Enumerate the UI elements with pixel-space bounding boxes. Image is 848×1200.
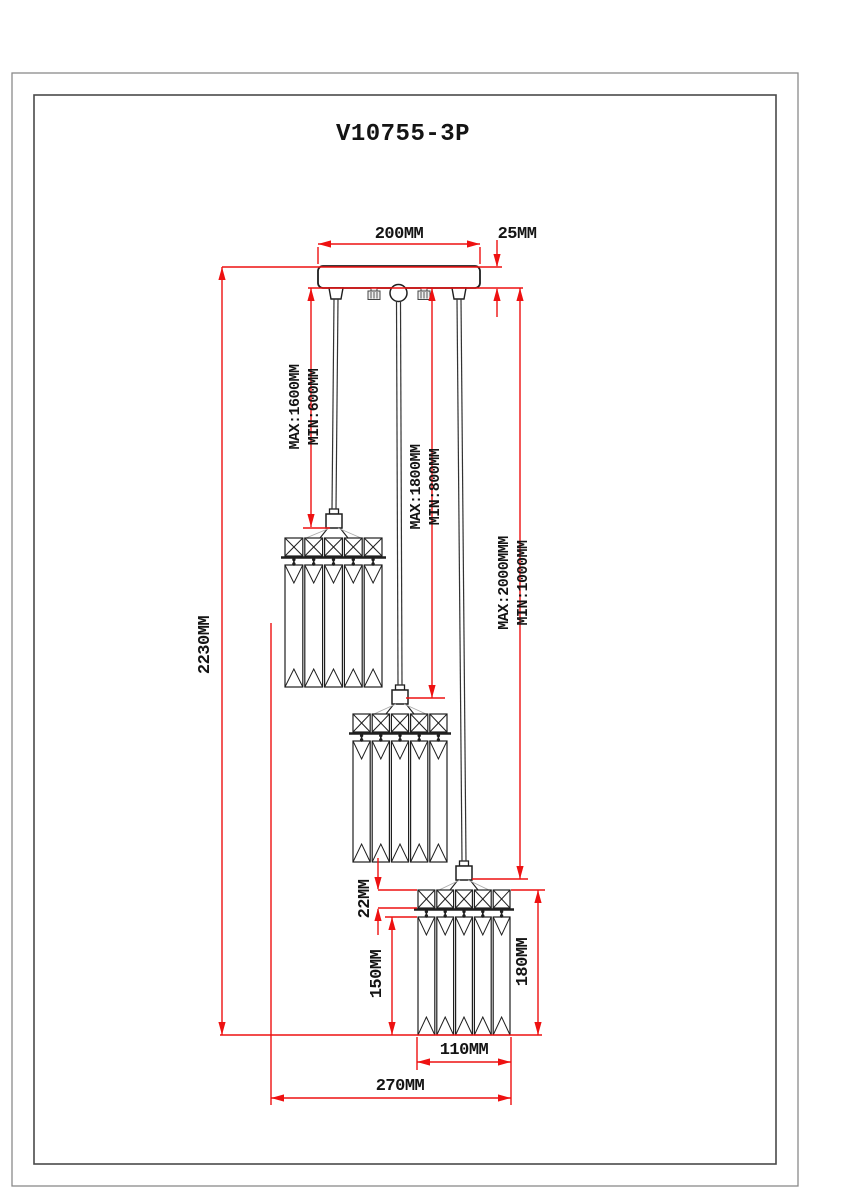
shade-1-prism-facet bbox=[285, 565, 303, 583]
label-pendant3-max: MAX:2000MMM bbox=[496, 536, 513, 630]
shade-2-prism-facet bbox=[430, 844, 447, 862]
shade-3-link-pin bbox=[425, 910, 428, 913]
shade-2-cord bbox=[401, 301, 403, 685]
dimension-arrowhead bbox=[428, 685, 435, 698]
label-band-height: 22MM bbox=[356, 879, 375, 918]
dimension-arrowhead bbox=[534, 890, 541, 903]
dimension-arrowhead bbox=[307, 288, 314, 301]
shade-1-prism-facet bbox=[325, 565, 343, 583]
shade-2-link-pin bbox=[379, 734, 382, 737]
drawing-title: V10755-3P bbox=[336, 121, 470, 148]
label-pendant2-max: MAX:1800MM bbox=[408, 444, 425, 530]
dimension-arrowhead bbox=[218, 267, 225, 280]
shade-3-cap bbox=[456, 866, 472, 880]
label-cluster-span: 270MM bbox=[376, 1077, 425, 1096]
shade-1-link-pin bbox=[292, 558, 295, 561]
shade-3-prism-facet bbox=[437, 917, 454, 935]
dimension-arrowhead bbox=[534, 1022, 541, 1035]
shade-1 bbox=[281, 509, 386, 687]
dimension-arrowhead bbox=[516, 288, 523, 301]
dimension-arrowhead bbox=[493, 254, 500, 267]
shade-1-link-pin bbox=[312, 558, 315, 561]
dimension-arrowhead bbox=[374, 908, 381, 921]
label-canopy-width: 200MM bbox=[375, 225, 424, 244]
label-shade-height: 180MM bbox=[514, 937, 533, 986]
shade-2-prism-facet bbox=[372, 844, 389, 862]
shade-2-link-pin bbox=[418, 734, 421, 737]
shade-2-prism-facet bbox=[391, 741, 408, 759]
shade-2-cord bbox=[397, 301, 399, 685]
dimension-arrowhead bbox=[498, 1094, 511, 1101]
technical-drawing-canvas: V10755-3P 200MM 25MM 2230MM MAX:1600MM M… bbox=[0, 0, 848, 1200]
shade-2-prism-facet bbox=[372, 741, 389, 759]
shade-2-link-pin bbox=[398, 734, 401, 737]
shade-2-prism-facet bbox=[430, 741, 447, 759]
shade-1-cord bbox=[332, 299, 334, 509]
cord-hook-left bbox=[329, 288, 343, 299]
shade-1-prism-facet bbox=[364, 565, 382, 583]
label-pendant1-min: MIN:600MM bbox=[306, 368, 323, 445]
shade-1-prism-facet bbox=[344, 565, 362, 583]
label-pendant2-min: MIN:800MM bbox=[427, 448, 444, 525]
shade-3-link-pin bbox=[500, 910, 503, 913]
dimension-arrowhead bbox=[271, 1094, 284, 1101]
shade-2-flare-inner bbox=[404, 704, 426, 714]
shade-1-prism-facet bbox=[285, 669, 303, 687]
shade-3-flare-inner bbox=[468, 880, 489, 890]
shade-3-link-pin bbox=[462, 910, 465, 913]
shade-2-prism-facet bbox=[353, 741, 370, 759]
shade-2-prism-facet bbox=[411, 741, 428, 759]
dimension-arrowhead bbox=[388, 917, 395, 930]
dimension-arrowhead bbox=[417, 1058, 430, 1065]
shade-3-prism-facet bbox=[474, 917, 491, 935]
label-canopy-height: 25MM bbox=[498, 225, 537, 244]
label-overall-drop: 2230MM bbox=[196, 616, 215, 675]
dimension-arrowhead bbox=[516, 866, 523, 879]
shade-3 bbox=[414, 861, 514, 1035]
label-prism-height: 150MM bbox=[368, 949, 387, 998]
shade-2-link-pin bbox=[437, 734, 440, 737]
shade-1-flare-inner bbox=[338, 528, 361, 538]
label-pendant1-max: MAX:1600MM bbox=[287, 364, 304, 450]
shade-1-prism-facet bbox=[305, 565, 323, 583]
shade-1-prism-facet bbox=[305, 669, 323, 687]
shade-3-prism-facet bbox=[493, 1017, 510, 1035]
shade-3-prism-facet bbox=[456, 917, 473, 935]
dimension-arrowhead bbox=[218, 1022, 225, 1035]
shade-1-link-pin bbox=[371, 558, 374, 561]
shade-1-prism-facet bbox=[344, 669, 362, 687]
shade-3-prism-facet bbox=[418, 1017, 435, 1035]
dimension-arrowhead bbox=[498, 1058, 511, 1065]
dimension-arrowhead bbox=[467, 240, 480, 247]
shade-1-flare-inner bbox=[306, 528, 330, 538]
shade-1-cord bbox=[336, 299, 338, 509]
shade-1-prism-facet bbox=[325, 669, 343, 687]
shade-3-prism-facet bbox=[418, 917, 435, 935]
cord-hook-right bbox=[452, 288, 466, 299]
shade-2-link-pin bbox=[360, 734, 363, 737]
shade-2-prism-facet bbox=[353, 844, 370, 862]
shade-3-link-pin bbox=[481, 910, 484, 913]
shade-3-flare-inner bbox=[439, 880, 460, 890]
shade-2-prism-facet bbox=[391, 844, 408, 862]
label-shade-width: 110MM bbox=[440, 1041, 489, 1060]
shade-3-prism-facet bbox=[437, 1017, 454, 1035]
shade-2-flare-inner bbox=[374, 704, 396, 714]
shade-2-cap bbox=[392, 690, 408, 704]
dimension-arrowhead bbox=[388, 1022, 395, 1035]
shade-3-link-pin bbox=[444, 910, 447, 913]
dimension-arrowhead bbox=[318, 240, 331, 247]
inner-border bbox=[34, 95, 776, 1164]
shade-1-link-pin bbox=[352, 558, 355, 561]
shade-2 bbox=[349, 685, 451, 862]
dimension-arrowhead bbox=[374, 877, 381, 890]
shade-3-prism-facet bbox=[456, 1017, 473, 1035]
shade-1-link-pin bbox=[332, 558, 335, 561]
dimension-arrowhead bbox=[307, 514, 314, 527]
shade-1-prism-facet bbox=[364, 669, 382, 687]
shade-2-prism-facet bbox=[411, 844, 428, 862]
dimension-arrowhead bbox=[493, 288, 500, 301]
dimension-labels: 200MM 25MM 2230MM MAX:1600MM MIN:600MM M… bbox=[196, 225, 537, 1096]
shade-3-prism-facet bbox=[493, 917, 510, 935]
canopy-ball bbox=[390, 285, 407, 302]
shade-3-prism-facet bbox=[474, 1017, 491, 1035]
shade-1-cap bbox=[326, 514, 342, 528]
label-pendant3-min: MIN:1000MM bbox=[515, 540, 532, 626]
